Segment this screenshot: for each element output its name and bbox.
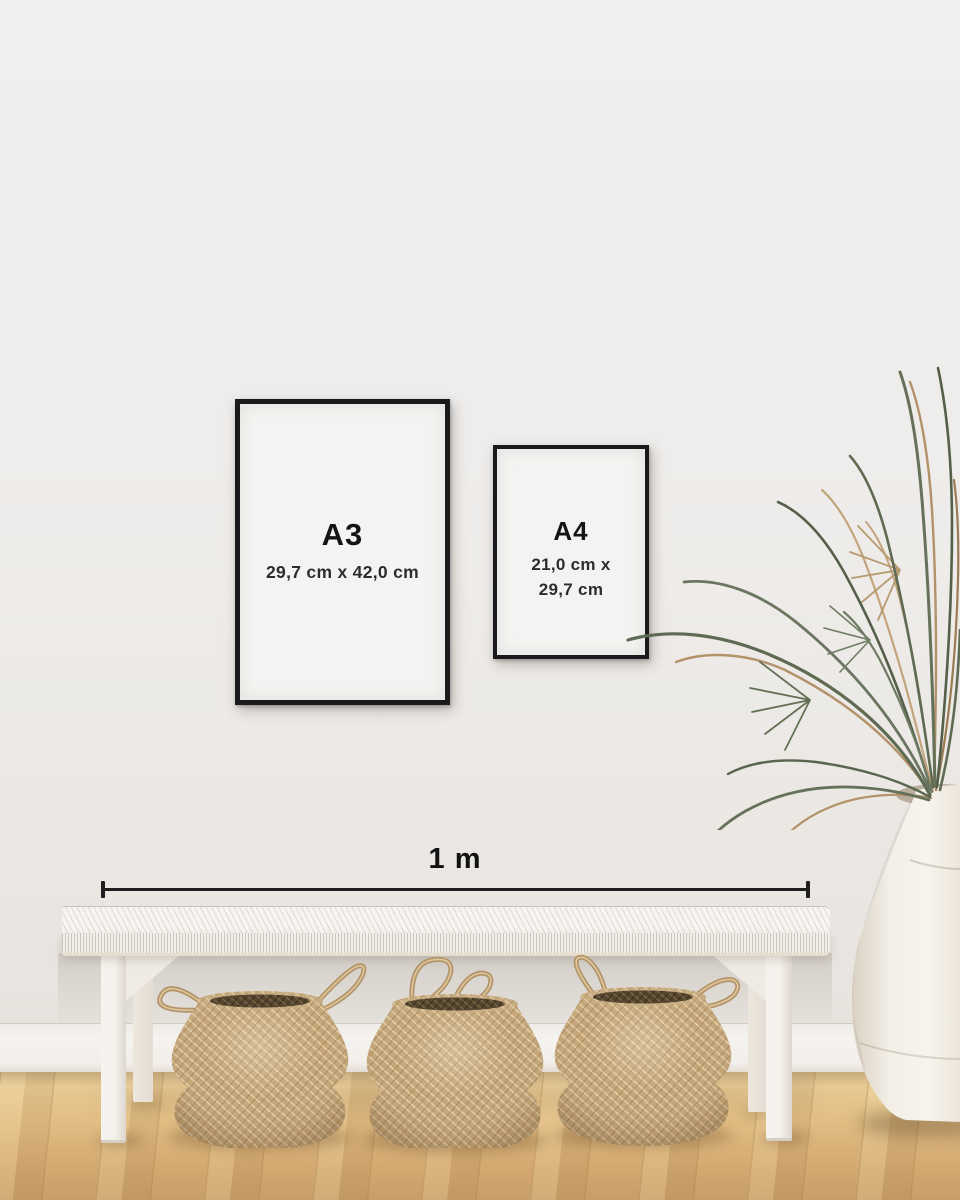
poster-paper-a3	[240, 404, 445, 700]
frame-a3: A3 29,7 cm x 42,0 cm	[235, 399, 450, 705]
frame-a4-dimensions: 21,0 cm x 29,7 cm	[531, 552, 610, 602]
basket-2	[367, 959, 544, 1148]
bench-front-leg-left	[101, 953, 126, 1143]
measurement-label: 1 m	[429, 843, 482, 876]
frame-a4-label: A4	[553, 518, 588, 545]
palm-fronds-front	[628, 368, 960, 830]
measurement-tick-left	[101, 881, 105, 898]
measurement-line	[103, 888, 808, 891]
basket-1	[160, 966, 364, 1148]
size-guide-scene: A3 29,7 cm x 42,0 cm A4 21,0 cm x 29,7 c…	[0, 0, 960, 1200]
seagrass-baskets	[150, 948, 750, 1148]
basket-3	[555, 957, 738, 1146]
frame-a4-dimensions-line1: 21,0 cm x	[531, 552, 610, 577]
bench-front-leg-right	[766, 953, 792, 1141]
frame-a4-dimensions-line2: 29,7 cm	[531, 577, 610, 602]
frame-a3-dimensions: 29,7 cm x 42,0 cm	[266, 560, 419, 585]
measurement-tick-right	[806, 881, 810, 898]
frame-a3-label: A3	[322, 519, 364, 552]
dried-palm-plant	[600, 310, 960, 830]
bench-woven-seat	[62, 906, 830, 934]
vase-body	[852, 785, 960, 1122]
